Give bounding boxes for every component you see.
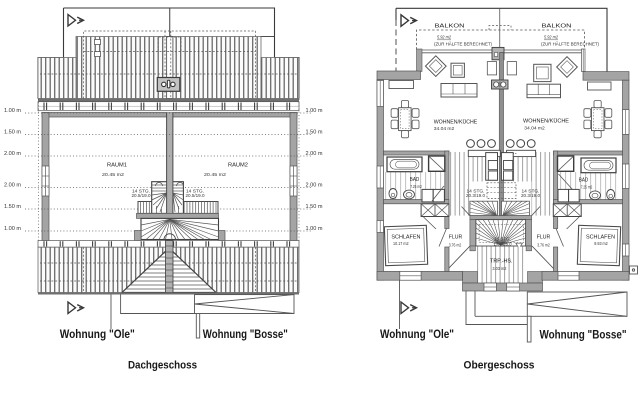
svg-text:(ZUR HÄLFTE BERECHNET): (ZUR HÄLFTE BERECHNET) [434,42,493,47]
svg-text:(ZUR HÄLFTE BERECHNET): (ZUR HÄLFTE BERECHNET) [541,42,600,47]
svg-text:1.00 m: 1.00 m [4,108,21,114]
svg-text:3.03 m2: 3.03 m2 [492,266,506,271]
svg-text:BAD: BAD [579,178,589,184]
svg-text:Wohnung "Bosse": Wohnung "Bosse" [203,327,288,341]
svg-text:3.76 m2: 3.76 m2 [537,243,550,248]
svg-text:Wohnung "Ole": Wohnung "Ole" [380,327,454,341]
svg-text:20.45 m2: 20.45 m2 [102,172,125,177]
svg-text:1.50 m: 1.50 m [306,130,323,136]
svg-text:17.6/26.0: 17.6/26.0 [494,242,513,247]
svg-text:20.3/19.0: 20.3/19.0 [466,193,486,198]
svg-text:Wohnung "Ole": Wohnung "Ole" [60,327,135,341]
svg-text:RAUM1: RAUM1 [107,163,127,169]
svg-text:BALKON: BALKON [542,24,572,30]
svg-text:7.25 m2: 7.25 m2 [581,184,593,189]
svg-text:Dachgeschoss: Dachgeschoss [128,359,197,371]
svg-text:1.50 m: 1.50 m [4,204,21,210]
svg-text:3.76 m2: 3.76 m2 [449,243,462,248]
svg-text:34.04 m2: 34.04 m2 [434,126,455,131]
svg-text:WOHNEN/KÜCHE: WOHNEN/KÜCHE [434,119,478,126]
svg-text:20.5/19.0: 20.5/19.0 [186,193,206,198]
svg-text:2.00 m: 2.00 m [4,151,21,157]
svg-text:BAD: BAD [410,177,420,183]
svg-text:SCHLAFEN: SCHLAFEN [586,234,615,240]
svg-text:WOHNEN/KÜCHE: WOHNEN/KÜCHE [523,118,569,125]
svg-text:20.5/19.0: 20.5/19.0 [132,193,152,198]
svg-text:RAUM2: RAUM2 [228,163,248,169]
svg-text:7.25 m2: 7.25 m2 [410,184,422,189]
svg-text:1.50 m: 1.50 m [306,204,323,210]
svg-text:BALKON: BALKON [435,24,465,30]
svg-text:2.00 m: 2.00 m [306,183,323,189]
svg-text:9.93 m2: 9.93 m2 [594,241,608,246]
svg-text:1.00 m: 1.00 m [4,226,21,232]
svg-text:TRP.-HS.: TRP.-HS. [490,259,513,265]
svg-text:34.04 m2: 34.04 m2 [524,125,545,130]
svg-text:20.3/19.0: 20.3/19.0 [521,193,541,198]
svg-text:Wohnung "Bosse": Wohnung "Bosse" [540,327,627,341]
svg-text:5.92 m2: 5.92 m2 [544,35,558,40]
svg-text:5.92 m2: 5.92 m2 [437,35,451,40]
svg-text:2.00 m: 2.00 m [4,183,21,189]
svg-text:FLUR: FLUR [537,235,551,241]
svg-text:FLUR: FLUR [449,235,463,241]
svg-text:Obergeschoss: Obergeschoss [464,359,535,371]
svg-text:2.00 m: 2.00 m [306,151,323,157]
svg-text:SCHLAFEN: SCHLAFEN [391,234,420,240]
svg-text:1.00 m: 1.00 m [306,226,323,232]
svg-text:10.17 m2: 10.17 m2 [393,241,409,246]
svg-text:1.00 m: 1.00 m [306,108,323,114]
svg-text:20.45 m2: 20.45 m2 [204,172,227,177]
svg-text:1.50 m: 1.50 m [4,130,21,136]
